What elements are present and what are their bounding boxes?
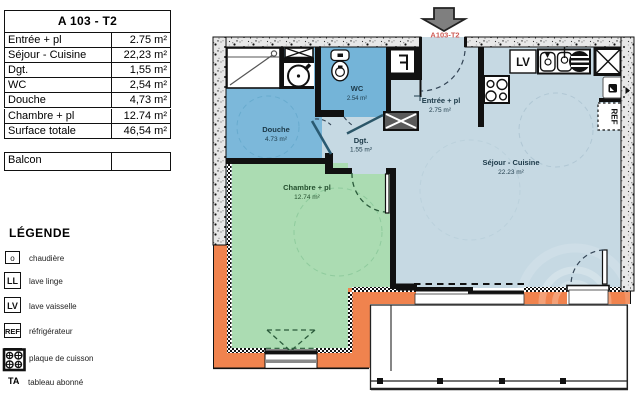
svg-text:WC: WC — [351, 84, 364, 93]
svg-text:22.23 m²: 22.23 m² — [498, 169, 524, 176]
svg-text:Entrée + pl: Entrée + pl — [422, 96, 461, 105]
svg-text:LV: LV — [516, 57, 530, 69]
svg-text:Douche: Douche — [262, 125, 290, 134]
svg-text:1.55 m²: 1.55 m² — [350, 147, 373, 154]
svg-text:Chambre + pl: Chambre + pl — [283, 183, 331, 192]
svg-text:A103-T2: A103-T2 — [430, 31, 459, 40]
svg-text:4.73 m²: 4.73 m² — [265, 136, 288, 143]
svg-text:2.54 m²: 2.54 m² — [347, 96, 367, 102]
svg-text:REF: REF — [610, 109, 619, 125]
svg-text:12.74 m²: 12.74 m² — [294, 194, 320, 201]
svg-text:Séjour - Cuisine: Séjour - Cuisine — [482, 158, 539, 167]
svg-text:Dgt.: Dgt. — [354, 136, 369, 145]
svg-text:2.75 m²: 2.75 m² — [429, 107, 452, 114]
